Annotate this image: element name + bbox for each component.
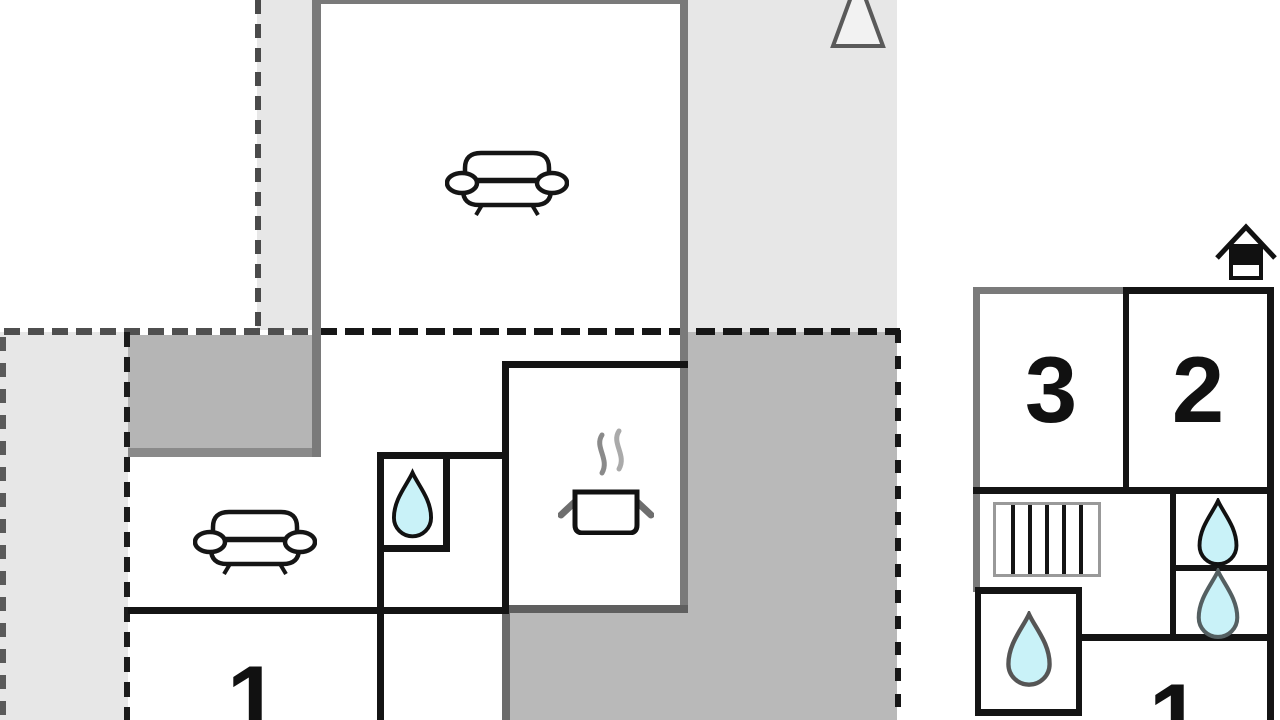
wall <box>975 587 981 716</box>
wall <box>377 545 450 552</box>
wall <box>975 587 1082 594</box>
wall <box>312 0 321 457</box>
wall <box>321 0 680 4</box>
tree-icon <box>822 0 894 50</box>
wall-block-edge <box>128 448 321 457</box>
dashed-boundary-left-horizontal <box>4 328 318 335</box>
water-drop-icon <box>1005 611 1053 689</box>
room-label-main-1: 1 <box>128 652 378 720</box>
dashed-boundary-right-vertical <box>895 330 901 720</box>
right-terrace-lower <box>688 332 897 720</box>
stair-tread <box>1011 505 1015 574</box>
room-number: 3 <box>1025 343 1077 437</box>
house-icon <box>1214 221 1278 281</box>
wall <box>502 605 688 613</box>
top-left-terrace <box>257 0 313 330</box>
left-terrace <box>0 332 128 720</box>
water-drop-icon <box>1196 498 1240 568</box>
room-label-3: 3 <box>979 293 1123 487</box>
sofa-icon <box>445 144 569 216</box>
room-label-annex-1: 1 <box>1082 670 1268 720</box>
stair-tread <box>1045 505 1049 574</box>
wall <box>1082 634 1274 641</box>
wall <box>973 487 1274 494</box>
sofa-icon <box>193 503 317 575</box>
cooking-pot-icon <box>558 425 654 535</box>
wall <box>502 361 688 368</box>
water-drop-icon <box>1195 568 1241 641</box>
bottom-terrace <box>509 613 688 720</box>
wall <box>502 613 510 720</box>
stairs-icon <box>993 502 1101 577</box>
room-number: 1 <box>1149 664 1201 720</box>
wall <box>975 709 1082 716</box>
wall <box>443 452 450 552</box>
wall <box>377 452 384 720</box>
wall-block <box>128 335 312 448</box>
dashed-boundary-far-left-vertical <box>0 337 6 720</box>
dashed-boundary-topleft-vertical <box>255 0 261 330</box>
room-number: 2 <box>1172 343 1224 437</box>
stair-tread <box>1079 505 1083 574</box>
stair-tread <box>1062 505 1066 574</box>
dashed-boundary-main-horizontal <box>318 328 900 335</box>
floor-plan: 3 2 1 1 <box>0 0 1280 720</box>
wall <box>502 361 509 612</box>
wall <box>128 607 509 614</box>
wall <box>1267 287 1274 720</box>
water-drop-icon <box>391 467 434 543</box>
wall <box>680 0 688 613</box>
room-number: 1 <box>227 646 279 720</box>
room-label-2: 2 <box>1129 293 1267 487</box>
stair-tread <box>1028 505 1032 574</box>
